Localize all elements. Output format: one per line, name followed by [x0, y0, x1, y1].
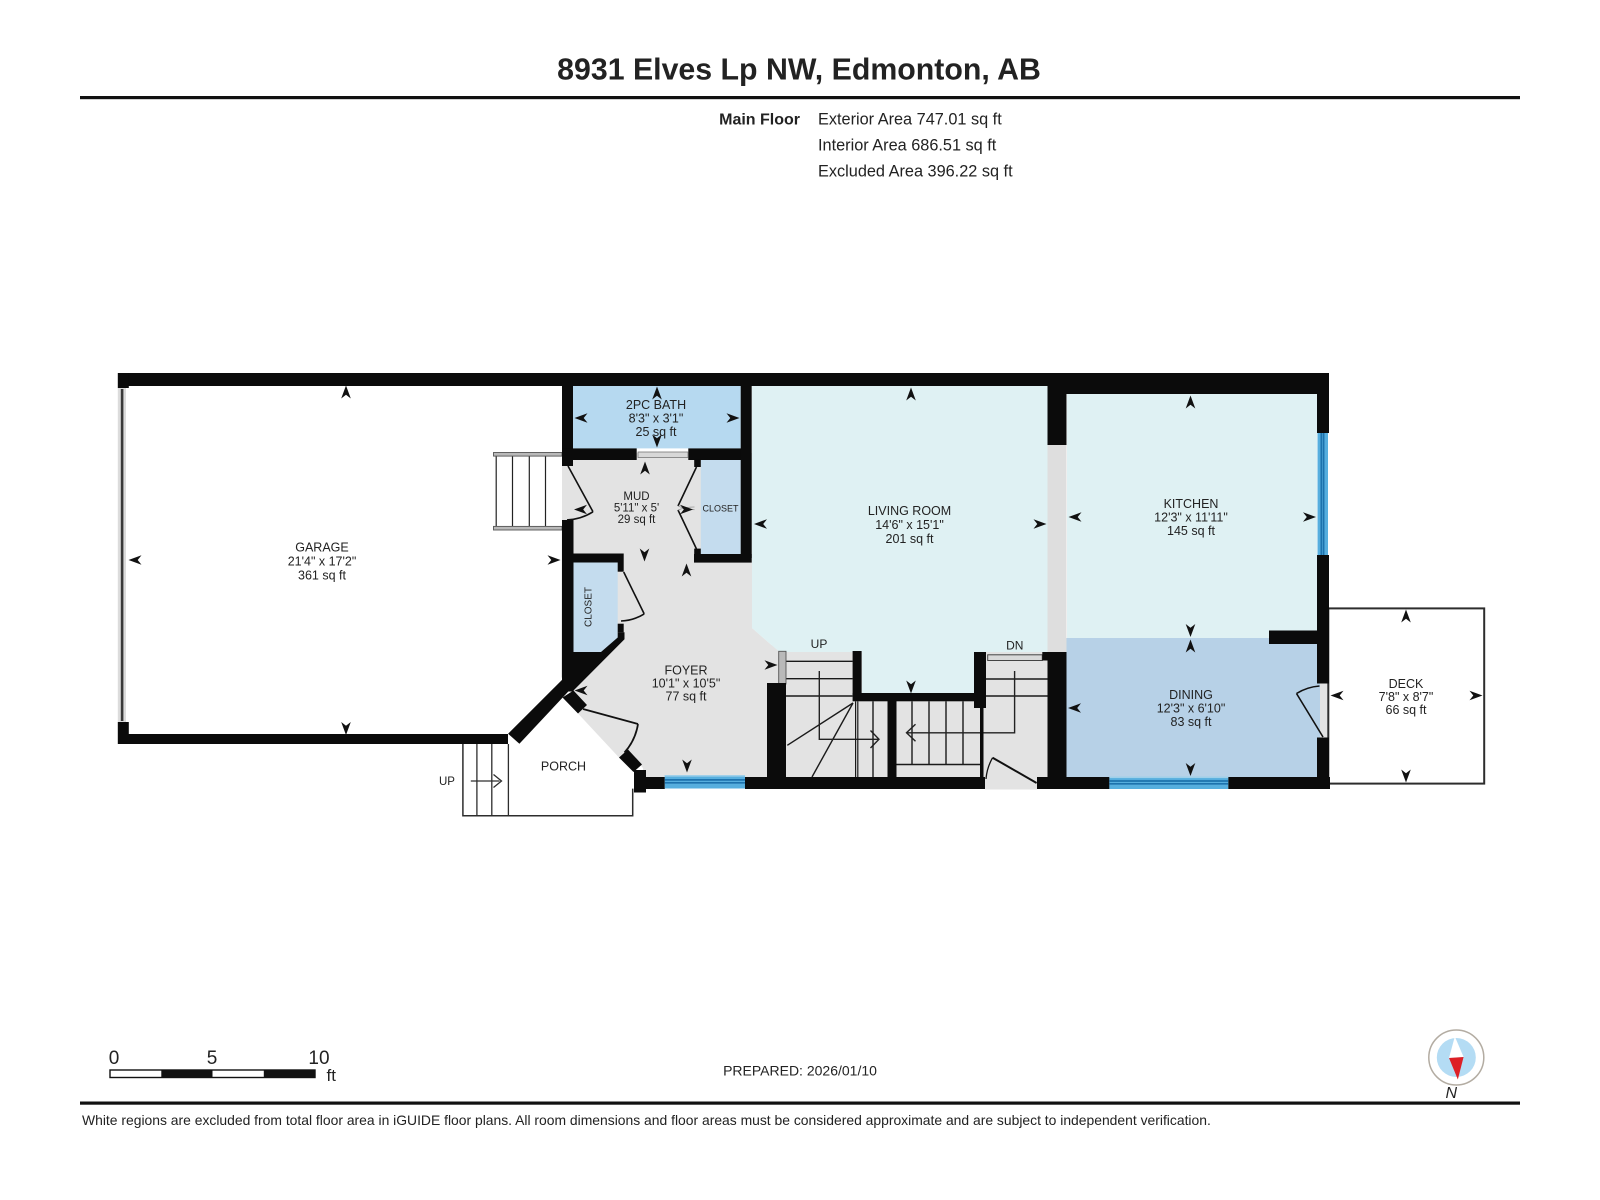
svg-text:201 sq ft: 201 sq ft [886, 532, 934, 546]
svg-text:12'3" x 11'11": 12'3" x 11'11" [1154, 511, 1228, 525]
svg-text:10'1" x 10'5": 10'1" x 10'5" [652, 677, 721, 691]
svg-text:CLOSET: CLOSET [584, 587, 595, 627]
svg-text:0: 0 [109, 1048, 120, 1069]
svg-text:Interior Area 686.51 sq ft: Interior Area 686.51 sq ft [818, 137, 997, 155]
svg-text:PREPARED: 2026/01/10: PREPARED: 2026/01/10 [723, 1063, 877, 1079]
svg-text:5'11" x 5': 5'11" x 5' [614, 503, 659, 515]
svg-text:MUD: MUD [623, 491, 649, 503]
svg-text:N: N [1446, 1085, 1458, 1102]
svg-text:361 sq ft: 361 sq ft [298, 569, 346, 583]
svg-text:14'6" x 15'1": 14'6" x 15'1" [875, 518, 944, 532]
svg-text:GARAGE: GARAGE [295, 541, 349, 555]
svg-text:Exterior Area 747.01 sq ft: Exterior Area 747.01 sq ft [818, 111, 1002, 129]
svg-text:8'3" x 3'1": 8'3" x 3'1" [629, 412, 684, 426]
svg-text:ft: ft [327, 1066, 337, 1085]
svg-text:25 sq ft: 25 sq ft [636, 425, 678, 439]
svg-text:DN: DN [1006, 639, 1023, 653]
svg-text:UP: UP [811, 637, 828, 651]
svg-text:77 sq ft: 77 sq ft [666, 690, 708, 704]
svg-text:Main Floor: Main Floor [719, 112, 800, 129]
svg-text:DINING: DINING [1169, 688, 1213, 702]
svg-text:8931 Elves Lp NW, Edmonton, AB: 8931 Elves Lp NW, Edmonton, AB [557, 54, 1041, 87]
svg-text:7'8" x 8'7": 7'8" x 8'7" [1379, 690, 1434, 704]
svg-text:Excluded Area 396.22 sq ft: Excluded Area 396.22 sq ft [818, 163, 1013, 181]
svg-text:12'3" x 6'10": 12'3" x 6'10" [1157, 702, 1226, 716]
svg-text:KITCHEN: KITCHEN [1164, 497, 1219, 511]
svg-text:5: 5 [207, 1048, 218, 1069]
svg-text:21'4" x 17'2": 21'4" x 17'2" [288, 555, 357, 569]
svg-text:DECK: DECK [1389, 677, 1424, 691]
svg-text:PORCH: PORCH [541, 760, 586, 774]
svg-text:83 sq ft: 83 sq ft [1171, 715, 1213, 729]
svg-text:FOYER: FOYER [664, 664, 707, 678]
svg-text:LIVING ROOM: LIVING ROOM [868, 504, 951, 518]
svg-text:White regions are excluded fro: White regions are excluded from total fl… [82, 1112, 1211, 1128]
svg-text:66 sq ft: 66 sq ft [1386, 703, 1428, 717]
svg-text:2PC BATH: 2PC BATH [626, 398, 686, 412]
svg-text:145 sq ft: 145 sq ft [1167, 524, 1215, 538]
svg-text:UP: UP [439, 776, 455, 788]
svg-text:29 sq ft: 29 sq ft [618, 514, 657, 526]
svg-text:CLOSET: CLOSET [702, 504, 739, 514]
